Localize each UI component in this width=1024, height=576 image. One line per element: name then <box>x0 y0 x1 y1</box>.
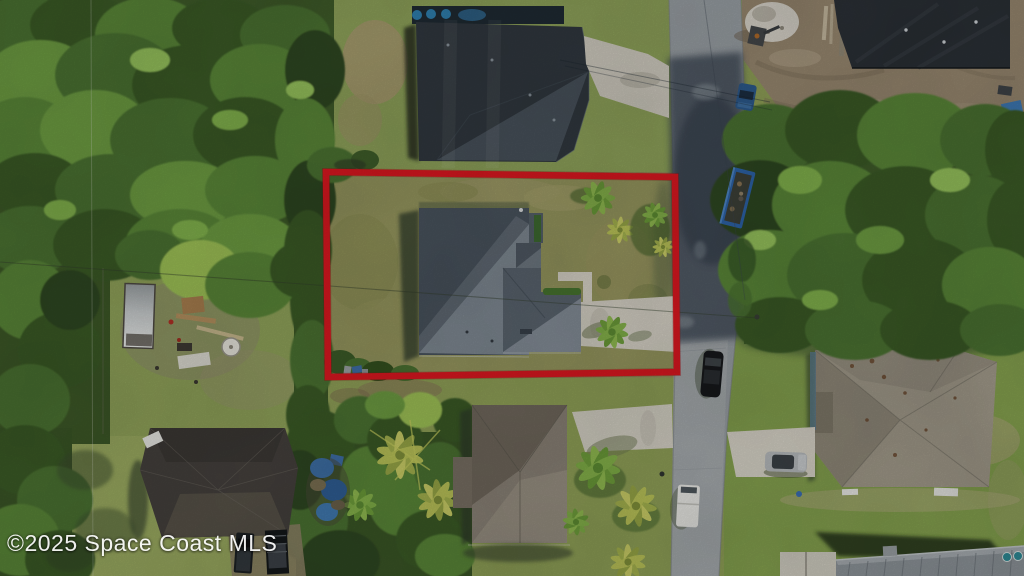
aerial-photo-canvas <box>0 0 1024 576</box>
mls-watermark: ©2025 Space Coast MLS <box>7 530 277 557</box>
aerial-photo: ©2025 Space Coast MLS <box>0 0 1024 576</box>
mls-watermark-text: ©2025 Space Coast MLS <box>7 530 277 556</box>
grain-overlay <box>0 0 1024 576</box>
